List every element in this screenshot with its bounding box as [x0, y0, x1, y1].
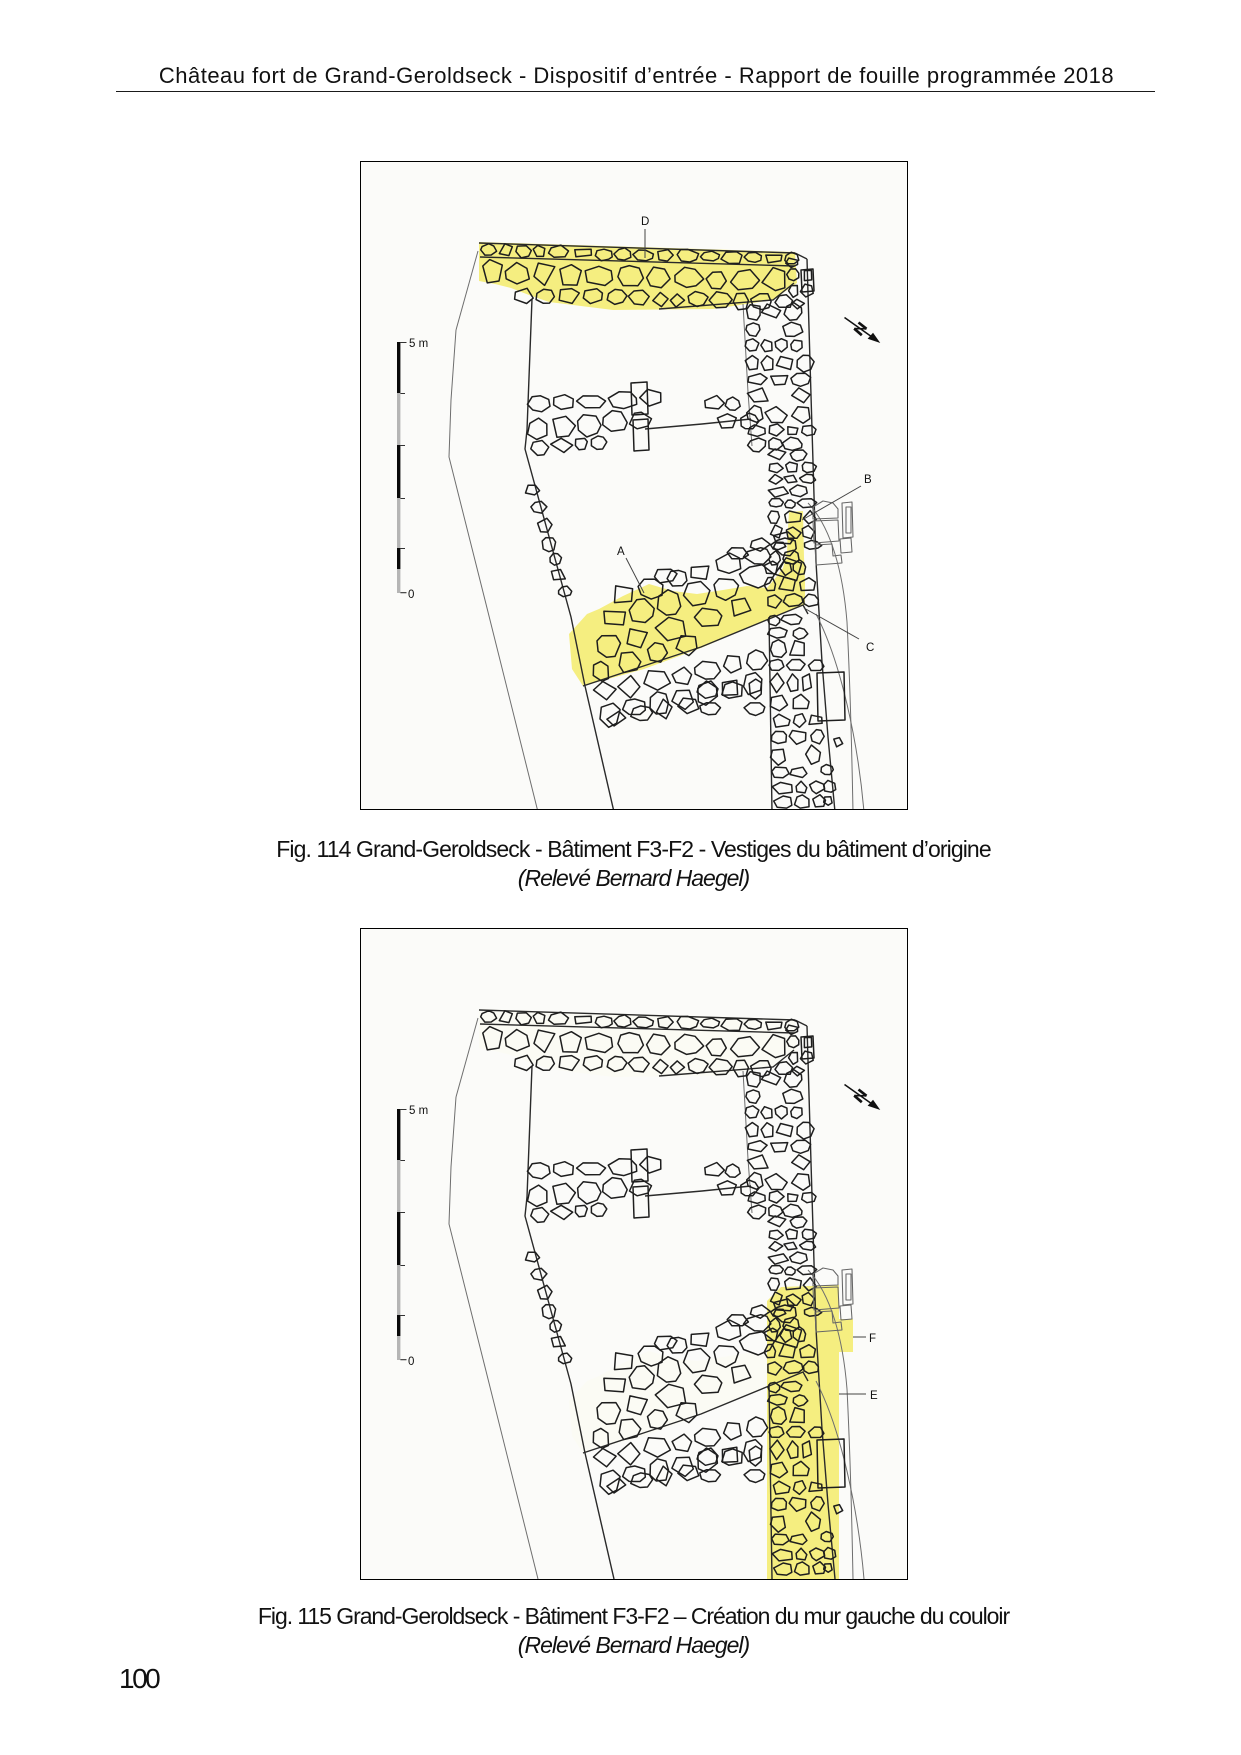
svg-text:E: E — [870, 1390, 878, 1402]
svg-text:5 m: 5 m — [409, 338, 428, 350]
svg-text:D: D — [641, 216, 649, 228]
svg-text:0: 0 — [408, 589, 414, 601]
svg-text:C: C — [866, 642, 874, 654]
svg-text:B: B — [864, 474, 872, 486]
svg-text:0: 0 — [408, 1356, 414, 1368]
svg-text:A: A — [617, 546, 625, 558]
svg-text:5 m: 5 m — [409, 1105, 428, 1117]
svg-text:F: F — [869, 1333, 876, 1345]
